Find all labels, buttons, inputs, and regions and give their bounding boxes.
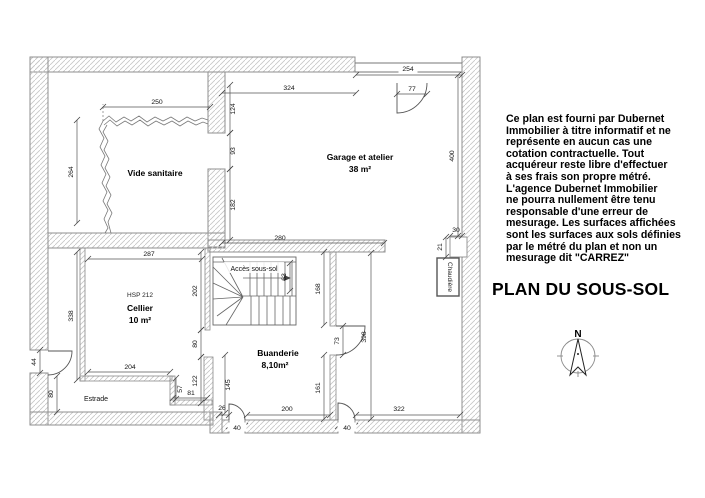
dim-label-garage-top-door: 77 — [408, 86, 416, 93]
dim-cellier-right-upper: 202 — [192, 249, 204, 333]
wall-notch — [450, 237, 467, 257]
dim-label-cellier-left: 338 — [68, 310, 75, 322]
dim-cellier-top: 287 — [85, 251, 205, 262]
room-area-garage: 38 m² — [349, 164, 371, 174]
dim-garage-wall-opening: 93 — [227, 130, 237, 172]
room-label-vide-sanitaire: Vide sanitaire — [127, 168, 182, 178]
dim-label-cellier-door: 80 — [192, 340, 199, 348]
dim-buanderie-door: 73 — [334, 323, 346, 358]
dim-label-buanderie-bottom: 200 — [281, 406, 293, 413]
dim-label-cellier-right-lower: 122 — [192, 375, 199, 387]
dim-estrade-door: 44 — [31, 347, 43, 376]
dim-label-buanderie-right-lower: 161 — [315, 382, 322, 394]
dim-label-garage-top-left: 324 — [283, 85, 295, 92]
dim-label-door-bottom-left: 40 — [233, 425, 241, 432]
dim-door-bottom-right: 40 — [335, 423, 358, 433]
dim-door-bottom-left: 40 — [226, 423, 248, 433]
dim-cellier-bottom: 204 — [85, 364, 173, 375]
dim-label-estrade-left: 80 — [48, 390, 55, 398]
boiler-box: Chaudière — [437, 258, 459, 296]
compass-north-arrow — [570, 339, 586, 375]
dim-vide-left: 264 — [68, 117, 80, 226]
dim-label-right-notch-width: 30 — [452, 227, 460, 234]
dim-label-garage-right: 400 — [449, 150, 456, 162]
dim-garage-wall-lower: 182 — [227, 166, 237, 243]
dim-label-door-bottom-right: 40 — [343, 425, 351, 432]
dim-cellier-door: 80 — [192, 327, 204, 360]
buanderie-bottom-door — [229, 404, 245, 420]
boiler-label: Chaudière — [446, 262, 453, 292]
dim-label-cellier-top: 287 — [143, 251, 155, 258]
estrade-left-door — [48, 351, 72, 375]
room-label-cellier: Cellier — [127, 303, 154, 313]
dim-label-cellier-step: 57 — [177, 385, 184, 393]
dim-label-stairs-width: 63 — [281, 273, 288, 281]
disclaimer-text: Ce plan est fourni par Dubernet Immobili… — [506, 114, 705, 265]
dim-garage-top-left: 324 — [219, 85, 359, 96]
dim-cellier-left: 338 — [68, 249, 80, 383]
dim-buanderie-bottom: 200 — [244, 406, 333, 418]
dim-label-vide-left: 264 — [68, 166, 75, 178]
dim-garage-wall-upper: 124 — [227, 82, 237, 136]
dim-garage-right: 400 — [449, 72, 461, 239]
stair-label: Accès sous-sol — [230, 266, 278, 273]
dim-label-buanderie-door: 73 — [334, 337, 341, 345]
compass-north-label: N — [574, 329, 581, 340]
compass-rose: N — [557, 329, 599, 377]
page-title: PLAN DU SOUS-SOL — [492, 279, 702, 300]
dim-label-garage-bottom: 280 — [274, 235, 286, 242]
dim-area-right-height: 398 — [361, 250, 374, 422]
dim-label-buanderie-left: 145 — [225, 379, 232, 391]
room-area-cellier: 10 m² — [129, 315, 151, 325]
dim-label-area-right-height: 398 — [361, 331, 368, 343]
interior-thick-walls — [48, 72, 385, 252]
room-hsp-cellier: HSP 212 — [127, 292, 153, 299]
room-label-garage: Garage et atelier — [327, 152, 394, 162]
dim-buanderie-right-upper: 168 — [315, 249, 327, 328]
right-area-bottom-door — [338, 403, 355, 420]
dim-right-notch-height: 21 — [437, 234, 449, 260]
dim-label-cellier-bottom-right: 81 — [187, 390, 195, 397]
floorplan-page: Chaudière Accès sous-sol Vide sanitaire … — [0, 0, 705, 498]
room-area-buanderie: 8,10m² — [262, 360, 289, 370]
dim-label-garage-wall-opening: 93 — [230, 147, 237, 155]
dim-label-buanderie-right-upper: 168 — [315, 283, 322, 295]
room-label-buanderie: Buanderie — [257, 348, 299, 358]
dim-label-garage-wall-upper: 124 — [230, 103, 237, 115]
dim-label-garage-wall-lower: 182 — [230, 199, 237, 211]
staircase: Accès sous-sol — [213, 257, 296, 325]
interior-thin-walls — [80, 248, 336, 420]
dim-label-vide-top: 250 — [151, 99, 163, 106]
room-label-estrade: Estrade — [84, 396, 108, 403]
dim-garage-top-opening: 254 — [353, 64, 465, 79]
dim-label-area-right-bottom: 322 — [393, 406, 405, 413]
dim-buanderie-right-lower: 161 — [315, 352, 327, 422]
dim-buanderie-offset: 26 — [216, 405, 232, 418]
dim-label-cellier-right-upper: 202 — [192, 285, 199, 297]
dim-estrade-left: 80 — [48, 373, 60, 415]
dim-label-right-notch-height: 21 — [437, 243, 444, 251]
dim-label-estrade-door: 44 — [31, 358, 38, 366]
dim-label-cellier-bottom: 204 — [124, 364, 136, 371]
dim-vide-top: 250 — [100, 99, 213, 110]
dim-label-garage-top-opening: 254 — [402, 66, 414, 73]
dim-area-right-bottom: 322 — [353, 406, 463, 418]
